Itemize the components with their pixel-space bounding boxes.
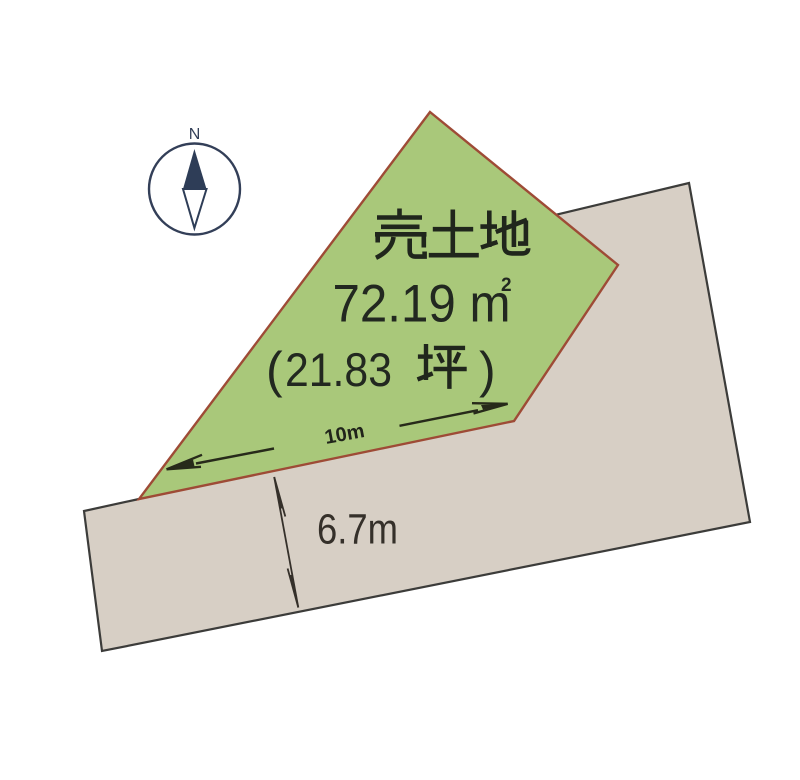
svg-text:): ) (479, 342, 496, 398)
svg-text:21.83: 21.83 (285, 343, 392, 396)
svg-text:N: N (189, 126, 201, 143)
svg-text:(: ( (266, 342, 283, 398)
svg-text:2: 2 (501, 275, 512, 296)
svg-text:6.7m: 6.7m (317, 506, 398, 554)
svg-text:72.19 m: 72.19 m (333, 275, 511, 334)
